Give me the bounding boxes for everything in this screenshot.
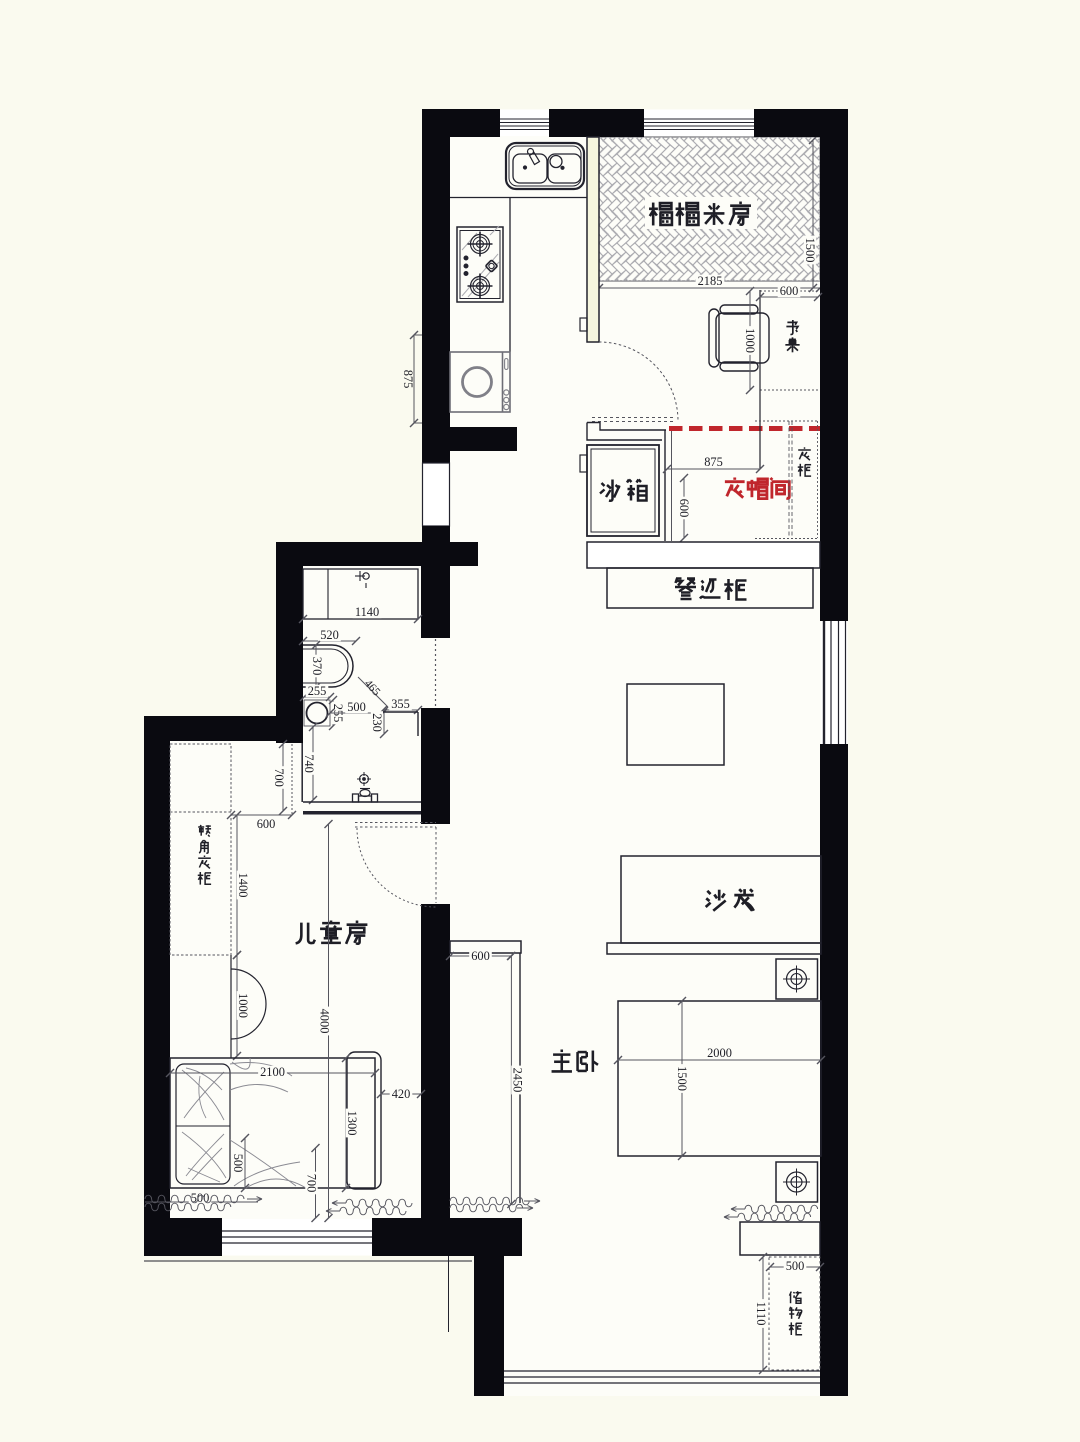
svg-text:1110: 1110 [754,1302,768,1326]
svg-text:2450: 2450 [510,1068,524,1093]
svg-text:2100: 2100 [260,1065,285,1079]
svg-text:500: 500 [231,1154,245,1173]
svg-text:700: 700 [305,1174,319,1193]
svg-text:2000: 2000 [707,1046,732,1060]
svg-text:600: 600 [471,949,490,963]
svg-text:1300: 1300 [345,1111,359,1136]
svg-text:230: 230 [370,713,384,732]
svg-text:1140: 1140 [355,605,379,619]
svg-text:370: 370 [310,657,324,676]
svg-text:1500: 1500 [803,238,817,263]
svg-text:700: 700 [272,768,286,787]
svg-text:500: 500 [347,700,366,714]
svg-text:2185: 2185 [698,274,723,288]
svg-text:4000: 4000 [318,1009,332,1034]
svg-text:420: 420 [392,1087,411,1101]
svg-text:600: 600 [780,284,799,298]
svg-text:1000: 1000 [743,328,757,353]
svg-text:520: 520 [320,628,339,642]
svg-text:255: 255 [308,684,327,698]
svg-text:355: 355 [391,697,410,711]
svg-text:600: 600 [677,499,691,518]
svg-text:740: 740 [302,754,316,773]
svg-text:1000: 1000 [236,993,250,1018]
svg-text:600: 600 [257,817,276,831]
svg-text:1500: 1500 [675,1066,689,1091]
svg-text:500: 500 [786,1259,805,1273]
svg-text:1400: 1400 [236,873,250,898]
svg-text:875: 875 [704,455,723,469]
svg-text:875: 875 [401,370,415,389]
